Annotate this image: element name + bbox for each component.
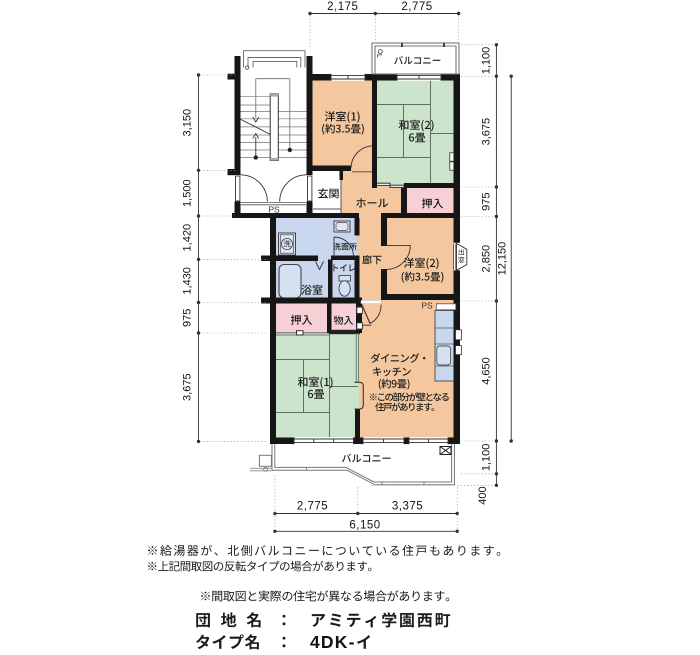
svg-text:975: 975 [182,309,194,327]
svg-text:1,100: 1,100 [481,47,493,75]
svg-text:PS: PS [268,205,280,215]
svg-text:1,100: 1,100 [481,444,493,472]
svg-text:1,500: 1,500 [182,179,194,207]
svg-text:3,675: 3,675 [182,373,194,401]
svg-text:3,375: 3,375 [392,501,423,513]
svg-text:12,150: 12,150 [497,242,509,276]
svg-text:2,775: 2,775 [297,501,328,513]
svg-text:975: 975 [481,193,493,211]
svg-text:1,420: 1,420 [182,224,194,252]
svg-text:3,150: 3,150 [182,109,194,137]
svg-text:2,175: 2,175 [327,1,358,13]
svg-text:PS: PS [421,301,433,311]
svg-text:4DK-: 4DK- [310,632,356,650]
svg-text:4,650: 4,650 [481,357,493,385]
svg-text:2,775: 2,775 [401,1,432,13]
svg-text:400: 400 [477,486,489,504]
svg-text:2,850: 2,850 [481,245,493,273]
svg-text:1,430: 1,430 [182,267,194,295]
svg-text:6,150: 6,150 [349,520,380,532]
svg-text:3,675: 3,675 [481,118,493,146]
